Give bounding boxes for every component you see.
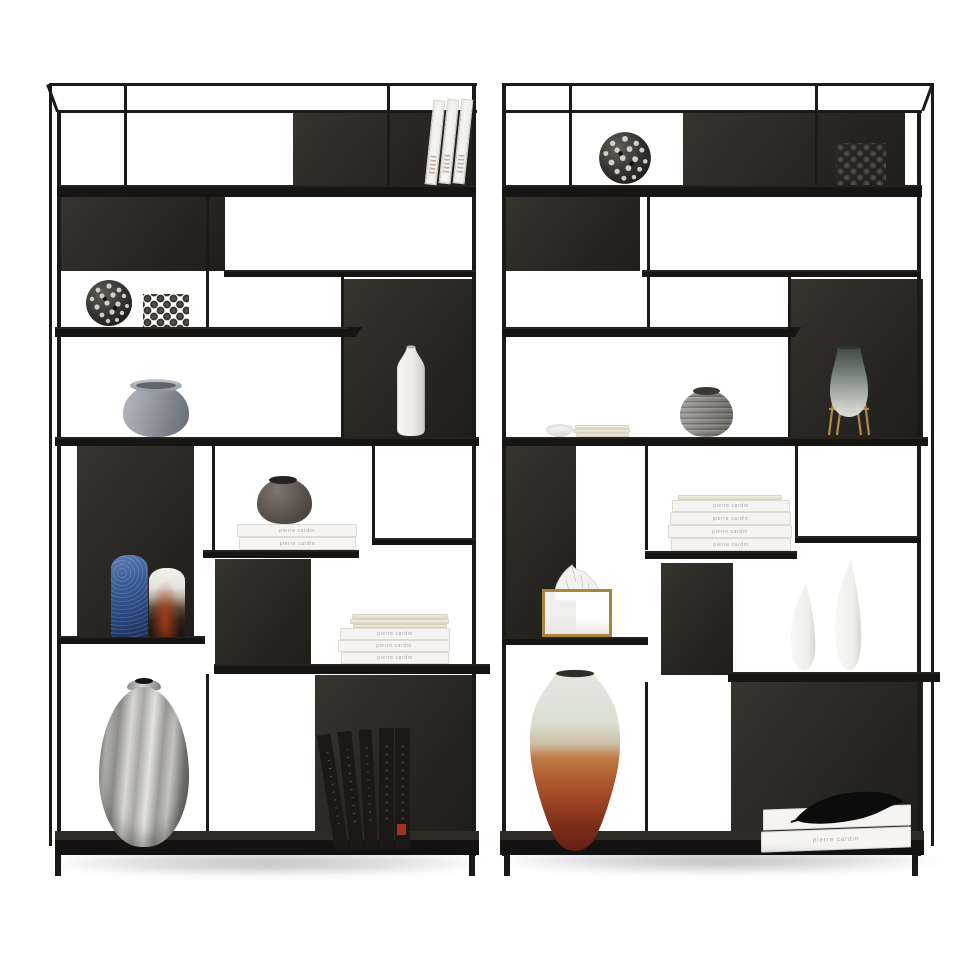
book-spine-text: pierre cardin	[813, 836, 859, 844]
frame-post-right	[917, 110, 921, 856]
white-book: pierre cardin	[671, 538, 791, 551]
taupe-round-vase	[257, 478, 312, 524]
vase-body	[680, 390, 733, 437]
white-book: pierre cardin	[341, 652, 449, 664]
vertical-divider	[212, 446, 215, 550]
white-gourd-vase	[784, 580, 822, 673]
shelf	[203, 550, 359, 558]
vertical-divider	[815, 83, 818, 185]
vase-opening	[269, 476, 297, 484]
vertical-divider	[795, 446, 798, 541]
shelf	[502, 185, 922, 197]
book-spine-text: pierre cardin	[713, 542, 749, 548]
frame-post-right	[472, 83, 476, 856]
top-rail-back	[49, 83, 477, 86]
note-papers-stack	[573, 425, 631, 438]
white-books-stack-with-papers: pierre cardin pierre cardin pierre cardi…	[338, 614, 452, 664]
vertical-divider	[645, 682, 648, 831]
white-book: pierre cardin	[237, 524, 357, 537]
white-book: pierre cardin	[340, 628, 450, 640]
back-panel	[505, 197, 640, 271]
book-spine-text: pierre cardin	[713, 503, 749, 509]
book-spine-text: pierre cardin	[376, 643, 412, 649]
tissue-box-frame	[542, 589, 612, 637]
shelf	[224, 270, 476, 277]
paper-sheet	[576, 433, 629, 437]
floor-shadow-left	[45, 850, 490, 876]
ombre-floor-vase	[525, 667, 625, 853]
vertical-divider	[788, 277, 791, 438]
frame-post-right-back	[931, 83, 934, 846]
book-spine	[379, 728, 394, 850]
pin-stud-sculpture	[143, 294, 189, 327]
top-rail-front	[502, 110, 922, 113]
shelf	[55, 327, 351, 337]
bookshelf-left: pierre cardin pierre cardin pierre cardi…	[57, 83, 477, 878]
smoked-glass-vase-gold-stand	[820, 345, 878, 437]
back-panel	[215, 559, 311, 666]
vertical-divider	[206, 674, 209, 831]
white-book: pierre cardin	[668, 525, 792, 538]
back-panel	[661, 563, 733, 675]
white-gourd-vase	[826, 556, 870, 673]
white-books-with-feather: pierre cardin pierre cardin	[761, 788, 913, 852]
white-books-stack: pierre cardin pierre cardin pierre cardi…	[668, 495, 794, 551]
floor-shadow-right	[495, 848, 945, 874]
perforated-sphere-ornament	[598, 131, 652, 185]
back-panel	[59, 197, 225, 271]
shelf	[502, 327, 790, 337]
vertical-divider	[341, 277, 344, 438]
ribbed-grey-vase	[680, 388, 733, 437]
vertical-divider	[372, 446, 375, 541]
blue-mottled-vase	[111, 555, 148, 637]
book-spine-text: pierre cardin	[712, 529, 748, 535]
shelf	[214, 664, 490, 674]
vertical-divider	[569, 83, 572, 185]
bookshelf-right: pierre cardin pierre cardin pierre cardi…	[502, 83, 922, 878]
shelf	[502, 437, 928, 446]
taupe-vase-on-books: pierre cardin pierre cardin	[255, 478, 359, 551]
white-bowl	[546, 424, 573, 437]
frame-post-left	[57, 110, 61, 856]
shelf	[728, 672, 940, 682]
grey-glass-jar	[123, 379, 189, 437]
shelf	[55, 437, 479, 446]
red-book-label	[397, 824, 406, 835]
white-book: pierre cardin	[338, 640, 450, 652]
frame-post-left	[502, 83, 506, 856]
white-bottle-vase	[391, 345, 431, 437]
vase-body	[99, 687, 189, 847]
frame-post-left-back	[49, 83, 52, 846]
book-spine-text: pierre cardin	[279, 528, 315, 534]
shelf	[57, 636, 205, 644]
shelf	[645, 551, 797, 559]
jar-opening	[136, 382, 176, 389]
white-leaning-books	[429, 99, 477, 185]
product-photo-scene: pierre cardin pierre cardin pierre cardi…	[0, 0, 968, 968]
shelf	[372, 538, 476, 545]
gold-tissue-box	[542, 561, 618, 645]
black-feather	[789, 786, 907, 831]
vertical-divider	[647, 197, 650, 327]
book-spine-text: pierre cardin	[377, 655, 413, 661]
shelf	[642, 270, 921, 277]
vase-opening	[135, 678, 153, 684]
black-white-ombre-vase	[149, 568, 185, 637]
top-rail-front	[57, 110, 477, 113]
black-leaning-books	[335, 728, 423, 850]
shelf	[57, 185, 476, 197]
book-spine-text: pierre cardin	[713, 516, 749, 522]
book-spine-text: pierre cardin	[280, 541, 316, 547]
top-rail-back	[502, 83, 934, 86]
vertical-divider	[124, 83, 127, 185]
silver-oval-vase	[99, 679, 189, 847]
white-book: pierre cardin	[672, 500, 790, 512]
white-book: pierre cardin	[670, 512, 791, 525]
jar-body	[123, 385, 189, 437]
vase-opening	[693, 387, 720, 395]
vertical-divider	[206, 197, 209, 327]
shelf	[795, 536, 921, 543]
vertical-divider	[387, 83, 390, 185]
book-spine-text: pierre cardin	[377, 631, 413, 637]
perforated-sphere-ornament	[85, 279, 133, 327]
white-book: pierre cardin	[239, 537, 356, 550]
vertical-divider	[645, 446, 648, 550]
stud-ball-sculpture	[836, 143, 886, 185]
